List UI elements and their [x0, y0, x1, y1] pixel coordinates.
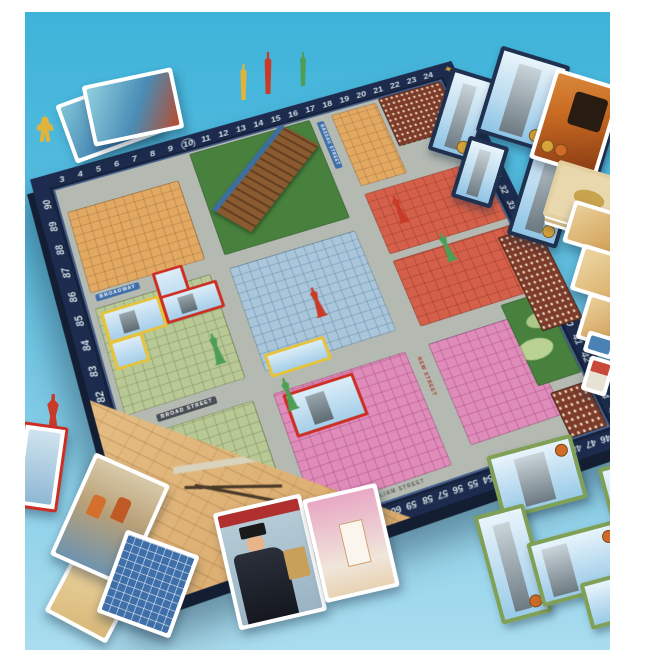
- worker-figure: [86, 493, 108, 519]
- skyscraper-token-yellow: [237, 64, 250, 100]
- card-art: [86, 72, 179, 142]
- tile-building-art: [177, 293, 198, 314]
- tile-building-art: [118, 310, 140, 334]
- score-track-number: 3: [52, 173, 73, 187]
- card-art: [25, 429, 61, 505]
- value-badge: [553, 442, 569, 458]
- score-track-number: 24: [418, 70, 438, 82]
- product-photo: 3456789101112131415161718192021222324 25…: [0, 0, 650, 650]
- red-border-card: [25, 421, 69, 513]
- skyscraper-token-green: [297, 52, 309, 86]
- value-badge: [540, 223, 556, 239]
- score-track-number: 6: [106, 157, 127, 170]
- building-silhouette: [338, 519, 371, 567]
- score-track-number: 5: [88, 163, 109, 176]
- tile-building-art: [541, 543, 579, 597]
- tile-building-art: [465, 148, 491, 197]
- value-badge: [601, 528, 610, 544]
- worker-figure: [110, 496, 133, 524]
- character-art: [567, 91, 609, 133]
- card-art: [587, 335, 610, 355]
- value-badge: [539, 138, 555, 154]
- blueprint-card: [82, 67, 185, 147]
- tile-building-art: [304, 391, 334, 425]
- score-track-number: 4: [70, 168, 91, 181]
- value-badge: [553, 142, 569, 158]
- building-tile-green: [579, 574, 610, 630]
- skyscraper-token-red: [261, 52, 275, 94]
- tile-building-art: [499, 64, 543, 138]
- tile-building-art: [493, 522, 532, 612]
- score-track-number: 7: [124, 152, 145, 165]
- card-art: [585, 360, 610, 392]
- skyscraper-illustration: [212, 124, 319, 232]
- score-track-number: 8: [142, 147, 163, 160]
- tile-building-art: [514, 451, 556, 506]
- photo-backdrop: 3456789101112131415161718192021222324 25…: [25, 12, 610, 650]
- meeple-yellow: [33, 116, 57, 144]
